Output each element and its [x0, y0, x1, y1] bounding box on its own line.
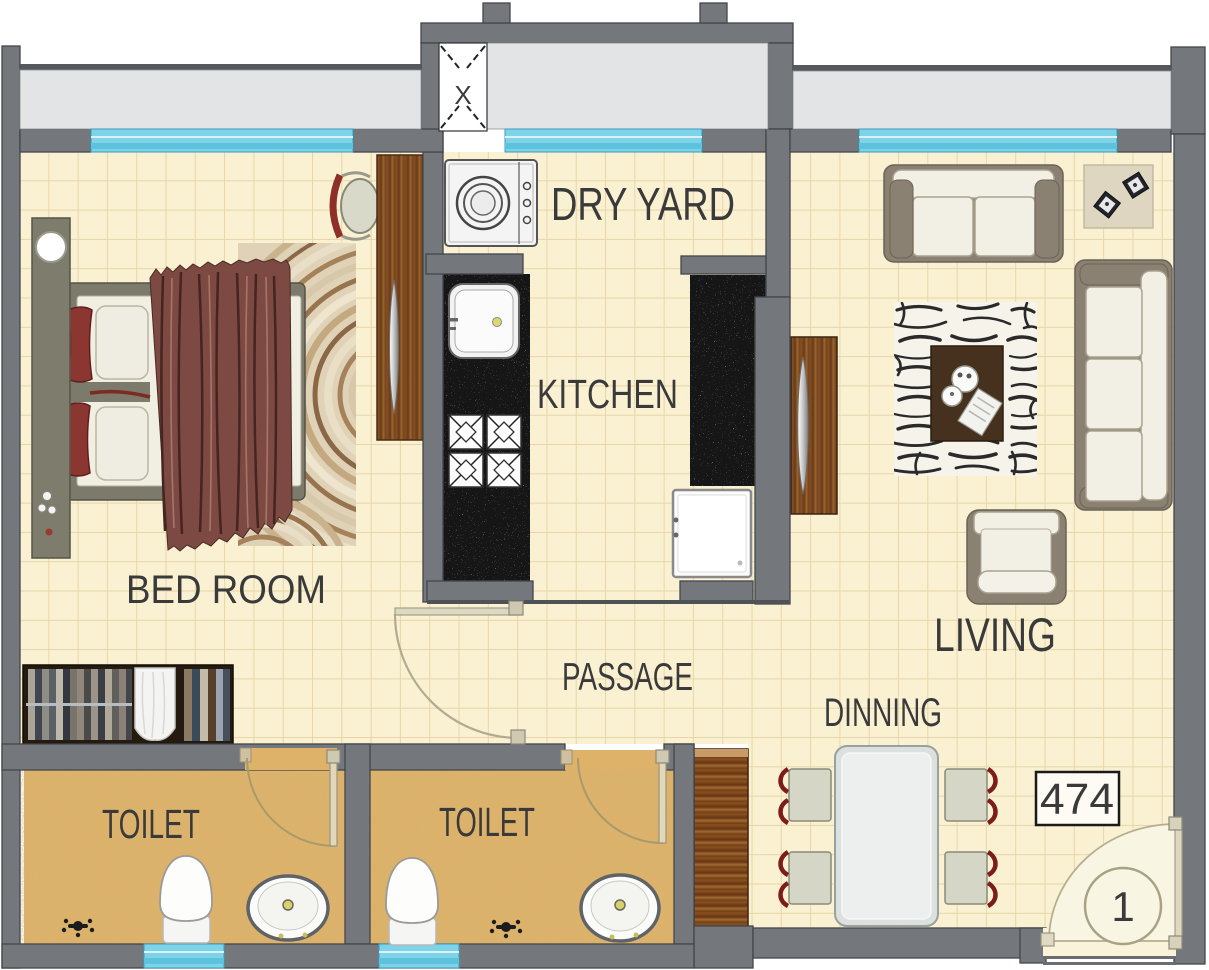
svg-text:X: X	[454, 80, 471, 110]
svg-text:KITCHEN: KITCHEN	[537, 371, 678, 417]
svg-text:474: 474	[1040, 775, 1114, 824]
svg-text:DINNING: DINNING	[824, 691, 942, 735]
svg-text:TOILET: TOILET	[439, 799, 535, 845]
svg-text:DRY YARD: DRY YARD	[551, 178, 735, 230]
svg-text:TOILET: TOILET	[102, 801, 200, 847]
svg-text:LIVING: LIVING	[934, 608, 1056, 661]
svg-text:1: 1	[1111, 883, 1134, 930]
svg-text:PASSAGE: PASSAGE	[562, 656, 693, 699]
svg-text:BED ROOM: BED ROOM	[126, 568, 326, 612]
